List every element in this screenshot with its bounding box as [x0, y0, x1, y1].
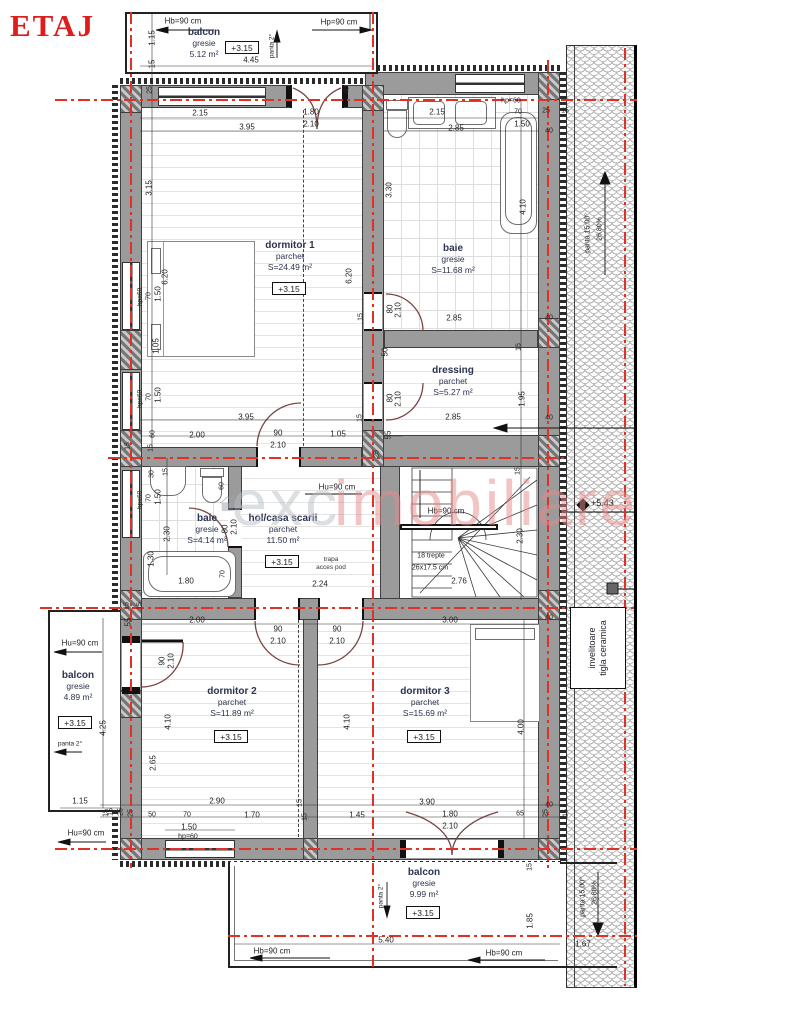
dim-label: 60	[150, 430, 157, 438]
roof-pitch-label: panta 15.00°	[580, 877, 587, 917]
dim-label: 1.50	[181, 823, 197, 832]
dim-label: 15	[561, 108, 569, 115]
section-line	[303, 110, 304, 446]
dim-label: 1.80	[303, 108, 319, 117]
dim-label: 4.25	[99, 720, 108, 736]
dim-label: 1.85	[526, 913, 535, 929]
dim-label: 90	[158, 657, 167, 666]
toilet-bowl	[387, 110, 407, 138]
dimension-labels: Hb=90 cmHp=90 cm1.15154.45panta 2°25402.…	[0, 0, 800, 1009]
dim-label: 15	[137, 602, 144, 610]
dim-label: 40	[545, 128, 553, 135]
room-label-dressing: dressing parchet S=5.27 m²	[432, 365, 474, 398]
dim-label: hp=60	[137, 390, 144, 408]
dim-label: 15	[297, 799, 304, 807]
dim-label: 80	[221, 525, 230, 534]
axis-line	[130, 12, 132, 868]
level-badge: +3.15	[265, 555, 299, 568]
roof-strip	[566, 45, 637, 988]
room-label-baie-mare: baie gresie S=11.68 m²	[431, 243, 475, 276]
dim-label: 40	[545, 615, 553, 622]
dim-label: 4.10	[519, 199, 528, 215]
dim-label: 40	[545, 802, 553, 809]
dim-label: 2.15	[429, 108, 445, 117]
dim-label: 2.10	[329, 637, 345, 646]
dim-label: Hb=90 cm	[428, 507, 465, 516]
dim-label: 25	[147, 86, 154, 94]
dim-label: 1.50	[154, 286, 163, 302]
dim-label: 30	[149, 470, 156, 478]
dim-label: 1.50	[514, 120, 530, 129]
dim-label: 18 trepte	[417, 553, 445, 560]
toilet-bowl	[202, 477, 222, 503]
dim-label: 2.85	[446, 314, 462, 323]
floor-plan: ETAJ	[0, 0, 800, 1009]
roof-pitch-percent: 26.80%	[597, 217, 604, 241]
axis-line	[108, 457, 566, 459]
dim-label: 25	[374, 450, 381, 458]
dim-label: 1.30	[147, 551, 156, 567]
dim-label: 25	[128, 809, 135, 817]
dim-label: panta 2°	[58, 741, 82, 748]
dim-label: 15	[125, 442, 132, 450]
balcony-inner-line	[234, 960, 558, 961]
dim-label: hp=60	[501, 98, 521, 105]
level-badge: +3.15	[225, 41, 259, 54]
dim-label: 4.45	[243, 56, 259, 65]
dim-label: 1.67	[575, 940, 591, 949]
dim-label: 1.80	[442, 810, 458, 819]
ridge-level: +5.43	[591, 498, 614, 508]
roof-pitch-percent: 26.80%	[592, 881, 599, 905]
dim-label: 40	[545, 315, 553, 322]
dim-label: hp=60	[137, 491, 144, 509]
dim-label: 25	[543, 809, 550, 817]
axis-line	[547, 60, 549, 868]
dim-label: 90	[274, 625, 283, 634]
dim-label: 1.50	[154, 387, 163, 403]
dim-label: 4.00	[517, 719, 526, 735]
dim-label: hp=60	[137, 288, 144, 306]
dim-label: 25	[118, 808, 125, 816]
dim-label: 50	[381, 348, 390, 357]
dim-label: 70	[514, 109, 522, 116]
dim-label: 3.95	[239, 123, 255, 132]
dim-label: 2.00	[189, 616, 205, 625]
dim-label: 1.05	[330, 430, 346, 439]
dim-label: 1.95	[518, 391, 527, 407]
door-opening	[290, 85, 344, 108]
dim-label: 2.10	[167, 653, 176, 669]
dim-label: 15	[124, 602, 131, 610]
balcony-bottom-edge-line	[560, 966, 617, 968]
dim-label: 2.30	[163, 526, 172, 542]
dim-label: 2.10	[303, 120, 319, 129]
dim-label: 6.20	[161, 269, 170, 285]
room-label-dormitor-3: dormitor 3 parchet S=15.69 m²	[400, 686, 449, 719]
toilet-tank	[386, 100, 408, 110]
dim-label: 15	[358, 313, 365, 321]
dim-label: Hp=90 cm	[321, 18, 358, 27]
dim-label: 15	[148, 444, 155, 452]
dim-label: 1.50	[154, 489, 163, 505]
dim-label: 4.10	[164, 714, 173, 730]
dim-label: panta 2°	[378, 884, 385, 908]
dim-label: 2.10	[270, 637, 286, 646]
dim-label: 25	[542, 108, 550, 115]
room-label-dormitor-1: dormitor 1 parchet S=24.49 m²	[265, 240, 314, 273]
dim-label: Hb=90 cm	[165, 17, 202, 26]
axis-line	[372, 12, 374, 970]
dim-label: Hu=90 cm	[319, 483, 356, 492]
level-badge: +3.15	[214, 730, 248, 743]
axis-line	[624, 48, 626, 986]
dim-label: 2.10	[230, 519, 239, 535]
dim-label: 2.76	[451, 577, 467, 586]
dim-label: 40	[344, 86, 351, 94]
dim-label: 2.00	[189, 431, 205, 440]
dim-label: 65	[516, 811, 524, 818]
pillow	[151, 248, 161, 274]
room-label-dormitor-2: dormitor 2 parchet S=11.89 m²	[207, 686, 256, 719]
dim-label: 3.95	[238, 413, 254, 422]
dim-label: 15	[103, 809, 110, 817]
balcony-top-edge-line	[560, 862, 617, 864]
door-opening	[254, 598, 300, 620]
level-badge: +3.15	[272, 282, 306, 295]
level-badge: +3.15	[407, 730, 441, 743]
dim-label: 3.30	[385, 182, 394, 198]
dim-label: 2.15	[192, 109, 208, 118]
dim-label: Hu=90 cm	[68, 829, 105, 838]
dim-label: 1.70	[244, 811, 260, 820]
dim-label: 3.90	[419, 798, 435, 807]
dim-label: 1.45	[349, 811, 365, 820]
dim-label: 1.15	[72, 797, 88, 806]
dim-label: 6.20	[345, 268, 354, 284]
dim-label: 3.00	[442, 616, 458, 625]
pillow	[475, 628, 535, 640]
dim-label: 15	[357, 414, 364, 422]
level-badge: +3.15	[58, 716, 92, 729]
dim-label: 55	[124, 618, 133, 627]
dim-label: 70	[220, 570, 227, 578]
dim-label: 2.65	[149, 755, 158, 771]
dim-label: 15	[163, 468, 170, 476]
room-label-balcon-top: balcon gresie 5.12 m²	[188, 27, 220, 60]
dim-label: 1.80	[178, 577, 194, 586]
door-opening	[318, 598, 364, 620]
dim-label: 2.10	[394, 302, 403, 318]
dim-label: 50	[148, 812, 156, 819]
toilet-tank	[200, 468, 224, 477]
bed-headboard-line	[163, 242, 164, 356]
dim-label: 15	[515, 467, 522, 475]
axis-line	[55, 848, 637, 850]
dim-label: 1.15	[148, 30, 157, 46]
window	[455, 74, 525, 93]
dim-label: 2.10	[270, 441, 286, 450]
room-label-balcon-left: balcon gresie 4.89 m²	[62, 670, 94, 703]
dim-label: 2.85	[445, 413, 461, 422]
dim-label: 15	[527, 863, 534, 871]
dim-label: 70	[146, 494, 153, 502]
dim-label: 3.15	[145, 180, 154, 196]
room-label-balcon-bottom: balcon gresie 9.99 m²	[408, 867, 440, 900]
dim-label: 70	[183, 812, 191, 819]
dim-label: Hu=90 cm	[62, 639, 99, 648]
roof-pitch-label: panta 15.00°	[585, 213, 592, 253]
dim-label: 2.30	[516, 528, 525, 544]
dim-label: Hb=90 cm	[486, 949, 523, 958]
room-label-hol: hol/casa scarii parchet 11.50 m²	[249, 513, 318, 546]
dim-label: 15	[563, 809, 570, 817]
dim-label: 15	[148, 60, 157, 69]
balcony-inner-line	[234, 866, 235, 961]
roof-covering-label: invelitoare tigla ceramica	[570, 607, 626, 689]
dim-label: panta 2°	[269, 34, 276, 58]
dim-label: 15	[516, 343, 523, 351]
dim-label: 2.24	[312, 580, 328, 589]
dim-label: 2.90	[209, 797, 225, 806]
dim-label: 90	[274, 429, 283, 438]
dim-label: 1.05	[152, 338, 161, 354]
dim-label: 70	[146, 393, 153, 401]
sink	[455, 101, 487, 125]
dim-label: 70	[146, 292, 153, 300]
dim-label: 2.10	[394, 391, 403, 407]
dim-label: 26x17.5 cm	[412, 565, 448, 572]
dim-label: 15	[302, 813, 309, 821]
dim-label: Hb=90 cm	[254, 947, 291, 956]
attic-access-note: trapa acces pod	[316, 556, 346, 572]
dim-label: hp=60	[178, 834, 198, 841]
dim-label: 4.10	[343, 714, 352, 730]
dim-label: 2.85	[448, 124, 464, 133]
dim-label: 55	[384, 431, 393, 440]
dim-label: 2.10	[442, 822, 458, 831]
axis-line	[228, 935, 637, 937]
dim-label: 40	[545, 415, 553, 422]
dim-label: 90	[333, 625, 342, 634]
dim-label: 5.40	[378, 936, 394, 945]
dim-label: 60	[219, 482, 226, 490]
level-badge: +3.15	[406, 906, 440, 919]
window	[158, 87, 266, 106]
axis-line	[55, 99, 637, 101]
page-title: ETAJ	[10, 8, 95, 44]
